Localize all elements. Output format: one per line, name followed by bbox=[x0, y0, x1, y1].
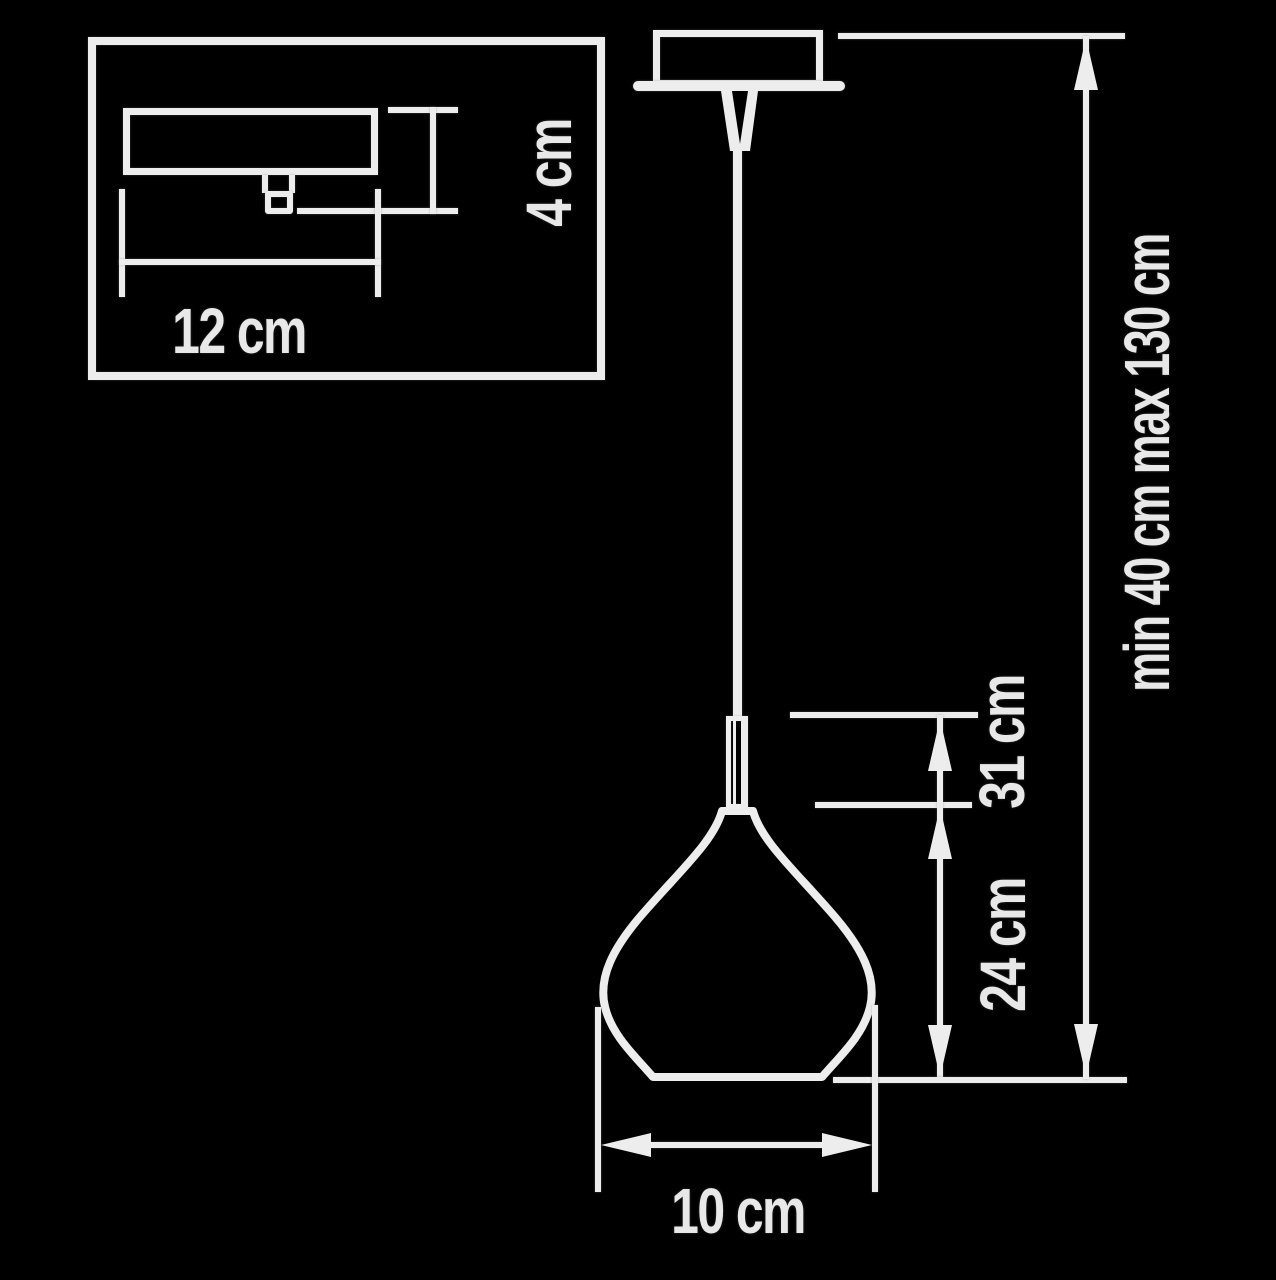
shade-width-left-arrow bbox=[601, 1133, 651, 1157]
cord-holder-inner-cord bbox=[733, 721, 744, 808]
shade-height-label: 24 cm bbox=[966, 878, 1040, 1012]
ceiling-plate bbox=[633, 81, 845, 91]
body-height-top-ext-line bbox=[790, 712, 978, 718]
body-height-top-arrow bbox=[928, 719, 952, 771]
shade-height-top-arrow bbox=[928, 807, 952, 859]
inset-canopy-outline bbox=[123, 108, 378, 175]
shade-width-right-arrow bbox=[822, 1133, 872, 1157]
pendant-lamp-dimension-diagram: 4 cm 12 cm 31 cm 24 cm min 40 cm max 130… bbox=[0, 0, 1276, 1280]
inset-width-label: 12 cm bbox=[172, 294, 306, 368]
inset-height-dim-line bbox=[430, 107, 436, 214]
inset-height-label: 4 cm bbox=[512, 119, 586, 227]
suspension-cord bbox=[733, 146, 742, 719]
body-shade-bottom-arrow bbox=[928, 1025, 952, 1077]
inset-width-dim-left-ext bbox=[119, 189, 125, 297]
total-height-top-arrow bbox=[1074, 38, 1098, 90]
total-height-bottom-arrow bbox=[1074, 1024, 1098, 1076]
ceiling-canopy-outline bbox=[653, 30, 823, 87]
shade-width-left-ext-line bbox=[595, 1007, 601, 1192]
strain-relief-cone bbox=[721, 91, 758, 151]
inset-cord-grip-body bbox=[265, 191, 293, 214]
shade-width-label: 10 cm bbox=[671, 1174, 805, 1248]
body-height-label: 31 cm bbox=[965, 675, 1039, 809]
inset-height-dim-top-tick bbox=[388, 107, 458, 113]
inset-width-dim-right-ext bbox=[375, 189, 381, 297]
glass-shade-outline bbox=[603, 811, 872, 1077]
inset-width-dim-line bbox=[119, 259, 381, 265]
total-height-label: min 40 cm max 130 cm bbox=[1110, 234, 1184, 692]
shade-width-right-ext-line bbox=[872, 1005, 878, 1192]
shade-width-dim-line bbox=[640, 1142, 836, 1148]
strain-relief-cone-notch bbox=[732, 91, 748, 144]
total-height-dim-line bbox=[1083, 36, 1089, 1079]
